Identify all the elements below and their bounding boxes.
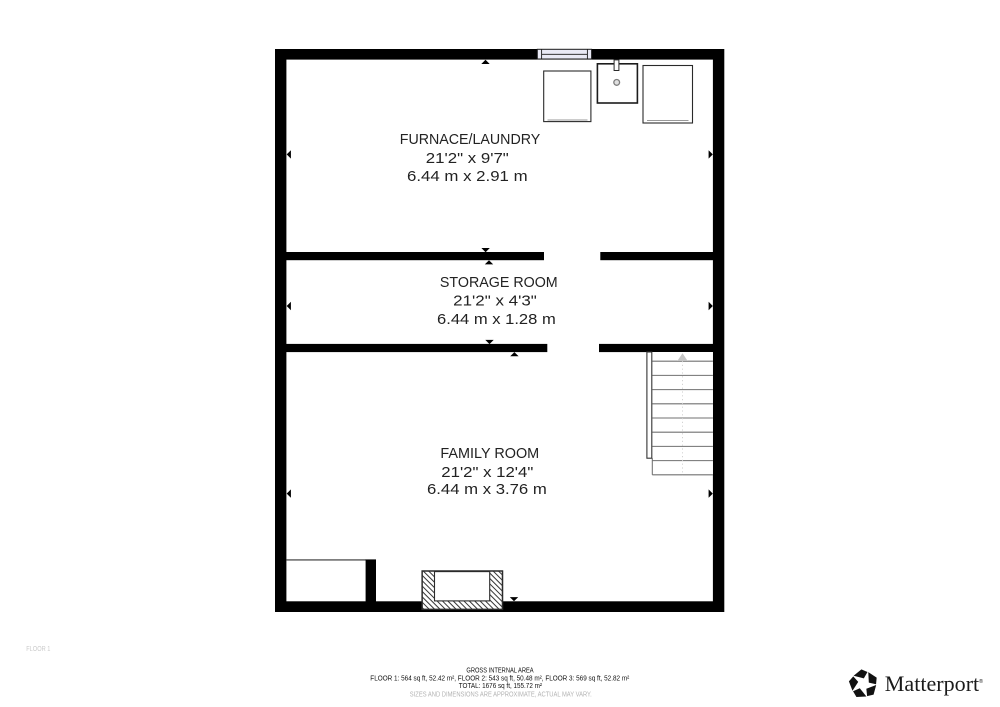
svg-text:FURNACE/LAUNDRY: FURNACE/LAUNDRY	[400, 131, 541, 148]
svg-text:Matterport: Matterport	[885, 671, 979, 696]
svg-text:FAMILY ROOM: FAMILY ROOM	[440, 445, 539, 462]
svg-text:6.44 m x 1.28 m: 6.44 m x 1.28 m	[437, 311, 556, 328]
svg-text:21'2" x 9'7": 21'2" x 9'7"	[426, 150, 509, 167]
svg-text:®: ®	[979, 678, 983, 685]
svg-text:FLOOR 1: FLOOR 1	[26, 646, 50, 653]
svg-text:STORAGE ROOM: STORAGE ROOM	[440, 274, 558, 291]
svg-text:21'2" x 4'3": 21'2" x 4'3"	[453, 293, 537, 310]
svg-text:21'2" x 12'4": 21'2" x 12'4"	[441, 464, 533, 481]
svg-text:6.44 m x 2.91 m: 6.44 m x 2.91 m	[407, 168, 528, 185]
svg-text:SIZES AND DIMENSIONS ARE APPRO: SIZES AND DIMENSIONS ARE APPROXIMATE, AC…	[410, 690, 592, 699]
svg-text:6.44 m x 3.76 m: 6.44 m x 3.76 m	[427, 481, 547, 498]
